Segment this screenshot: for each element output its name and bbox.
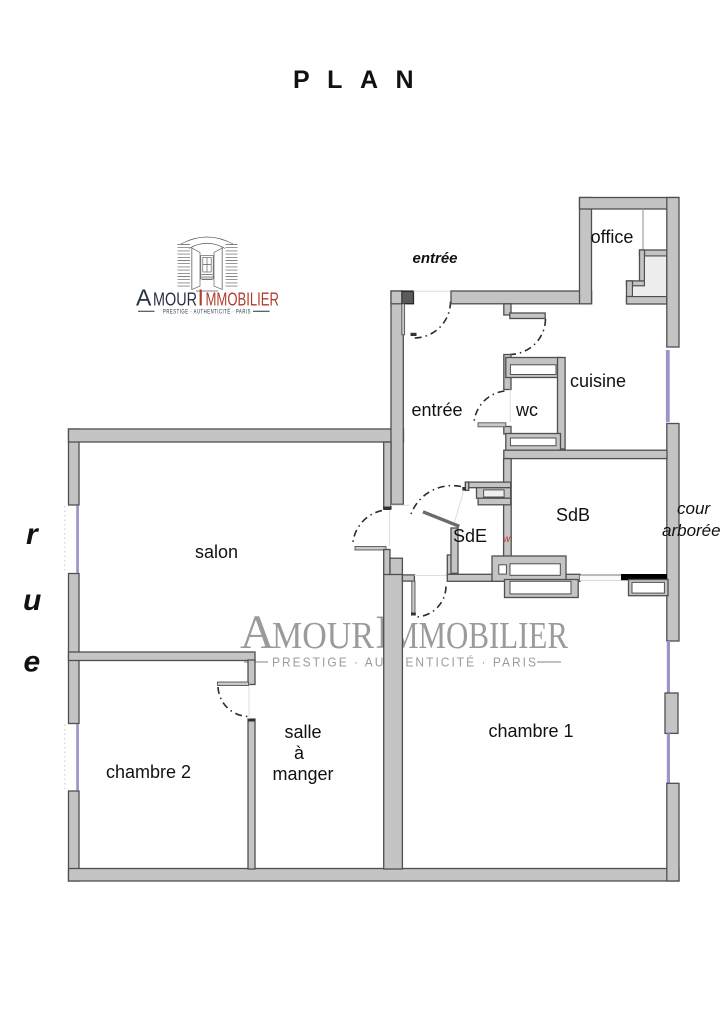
svg-text:u: u (23, 584, 41, 617)
svg-text:SdE: SdE (453, 526, 487, 546)
svg-text:office: office (591, 227, 634, 247)
svg-text:PRESTIGE · AUTHENTICITÉ · PARI: PRESTIGE · AUTHENTICITÉ · PARIS (272, 655, 538, 670)
svg-text:MMOBILIER: MMOBILIER (206, 290, 280, 310)
svg-text:salle: salle (284, 722, 321, 742)
svg-text:w: w (503, 534, 511, 545)
svg-text:MOUR: MOUR (153, 290, 197, 310)
svg-text:entrée: entrée (412, 250, 457, 267)
svg-text:A: A (240, 606, 275, 659)
svg-text:I: I (198, 285, 204, 311)
svg-text:e: e (24, 646, 41, 679)
svg-text:à: à (294, 743, 305, 763)
svg-text:chambre 1: chambre 1 (488, 721, 573, 741)
svg-text:MOUR: MOUR (272, 615, 375, 657)
svg-text:wc: wc (515, 400, 538, 420)
svg-text:salon: salon (195, 542, 238, 562)
svg-text:chambre 2: chambre 2 (106, 762, 191, 782)
svg-text:manger: manger (272, 764, 333, 784)
svg-text:PLAN: PLAN (293, 66, 431, 94)
svg-text:PRESTIGE · AUTHENTICITÉ · PARI: PRESTIGE · AUTHENTICITÉ · PARIS (163, 309, 251, 316)
svg-text:cour: cour (677, 499, 711, 518)
svg-text:arborée: arborée (662, 521, 721, 540)
svg-text:MMOBILIER: MMOBILIER (391, 615, 569, 657)
svg-text:SdB: SdB (556, 505, 590, 525)
svg-text:cuisine: cuisine (570, 371, 626, 391)
svg-text:entrée: entrée (411, 400, 462, 420)
svg-text:A: A (136, 285, 152, 311)
